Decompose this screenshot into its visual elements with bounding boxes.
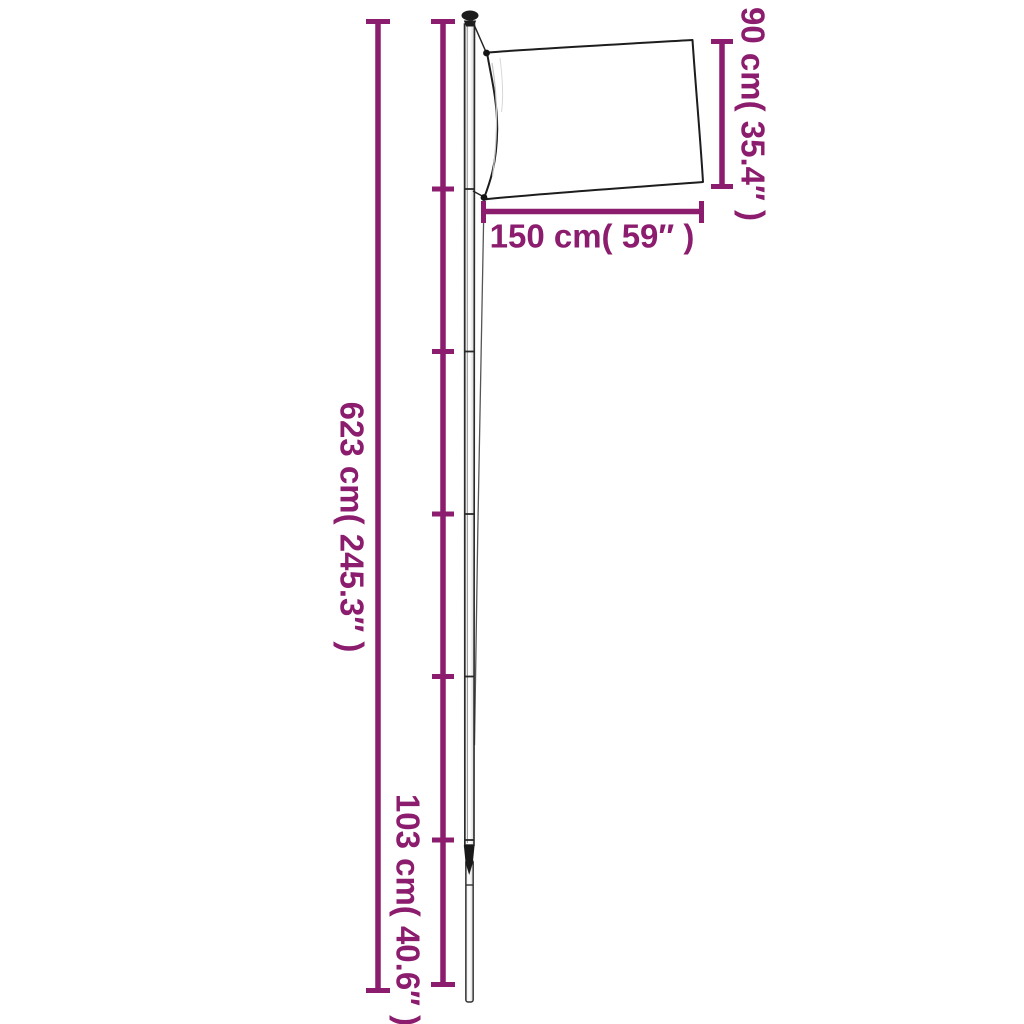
pole-sections-dimension-line (431, 20, 455, 987)
dimension-diagram: 623 cm( 245.3″ ) 103 cm( 40.6″ ) 150 cm(… (0, 0, 1024, 1024)
flag-height-dimension-line (711, 40, 733, 188)
flag-grommet-bottom (481, 194, 488, 201)
pole-shaft (465, 24, 475, 845)
flagpole-flag-illustration (0, 0, 1024, 1024)
flag (484, 40, 704, 200)
total-height-label: 623 cm( 245.3″ ) (336, 402, 369, 653)
flag-grommet-top (483, 50, 490, 57)
ground-spike (466, 860, 473, 1002)
bottom-section-label: 103 cm( 40.6″ ) (392, 794, 425, 1024)
flag-width-label: 150 cm( 59″ ) (490, 220, 695, 253)
flag-height-label: 90 cm( 35.4″ ) (737, 7, 770, 221)
halyard-rope (475, 200, 485, 745)
finial-ball (462, 11, 479, 21)
